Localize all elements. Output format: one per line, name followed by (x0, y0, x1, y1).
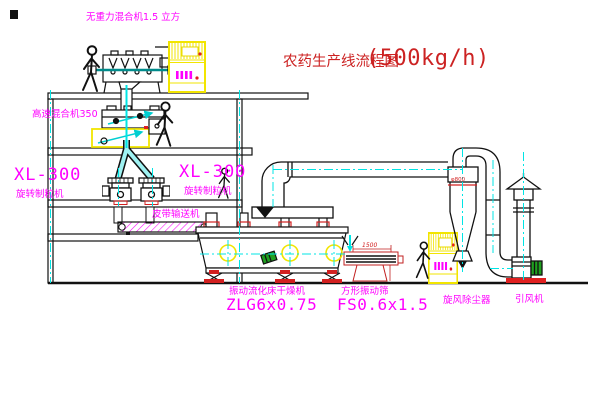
label-belt-conveyor: 皮带输送机 (152, 210, 200, 220)
label-sieve-model: FS0.6x1.5 (337, 297, 428, 313)
label-high-speed-mixer: 高速混合机350 (32, 110, 98, 120)
person-ground (417, 242, 430, 278)
diagram-capacity: (500kg/h) (366, 48, 490, 70)
label-gravity-mixer: 无重力混合机1.5 立方 (86, 13, 180, 23)
sieve-dimension: 1500 (362, 242, 377, 249)
flow-diagram: 无重力混合机1.5 立方 农药生产线流程图 (500kg/h) 高速混合机350… (0, 0, 600, 403)
label-fan: 引风机 (515, 295, 544, 305)
gravity-free-mixer (88, 47, 176, 93)
induced-draft-fan (506, 257, 546, 283)
control-cabinet-top (169, 42, 205, 92)
label-granulator-right-name: 旋转制粒机 (184, 187, 232, 197)
control-cabinet-ground (429, 233, 457, 283)
label-granulator-left-model: XL-300 (14, 167, 81, 184)
label-granulator-right-model: XL-300 (179, 164, 246, 181)
exhaust-duct (252, 162, 448, 218)
label-cyclone: 旋风除尘器 (443, 296, 491, 306)
label-dryer-model: ZLG6x0.75 (226, 297, 317, 313)
granulator-chute-left (114, 207, 122, 223)
belt-conveyor (118, 222, 208, 235)
label-granulator-left-name: 旋转制粒机 (16, 190, 64, 200)
fluid-bed-dryer (196, 213, 348, 283)
drawing-mark (10, 10, 18, 19)
cyclone-dust-collector (448, 148, 513, 277)
cyclone-dimension: φ800 (451, 177, 465, 183)
